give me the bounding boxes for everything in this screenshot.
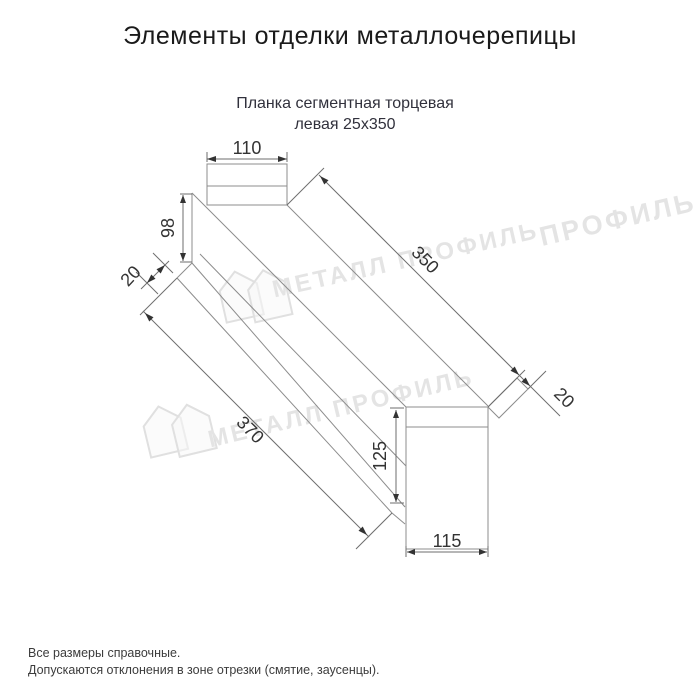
- dim-end-height: 125: [370, 408, 404, 503]
- near-end-flange: [488, 378, 528, 418]
- footer-note-1: Все размеры справочные.: [28, 645, 380, 662]
- dim-end-width: 115: [406, 531, 488, 557]
- dim-top-width-label: 110: [233, 138, 262, 158]
- far-fold-edge: [177, 263, 192, 278]
- dim-top-width: 110: [207, 138, 287, 162]
- dim-side-height: 98: [158, 194, 192, 262]
- far-end-face: [207, 164, 287, 205]
- footer-notes: Все размеры справочные. Допускаются откл…: [28, 645, 380, 678]
- technical-drawing: МЕТАЛЛ ПРОФИЛЬ МЕТАЛЛ ПРОФИЛЬ ПРОФИЛЬ: [0, 0, 700, 700]
- dim-side-fold: 20: [116, 253, 173, 294]
- near-end-face: [406, 407, 488, 549]
- watermark-3: ПРОФИЛЬ: [537, 187, 700, 252]
- footer-note-2: Допускаются отклонения в зоне отрезки (с…: [28, 662, 380, 679]
- dim-end-width-label: 115: [433, 531, 462, 551]
- watermark-2: МЕТАЛЛ ПРОФИЛЬ: [140, 333, 477, 467]
- near-fold-close: [392, 513, 405, 524]
- dim-side-fold-label: 20: [116, 262, 144, 290]
- catalog-page: Элементы отделки металлочерепицы Планка …: [0, 0, 700, 700]
- watermark-brand-text: МЕТАЛЛ ПРОФИЛЬ: [270, 217, 542, 303]
- dim-end-height-label: 125: [370, 441, 390, 471]
- dim-end-fold-label: 20: [550, 384, 578, 412]
- watermark-brand-text: ПРОФИЛЬ: [537, 187, 700, 252]
- profile-outline: [177, 164, 528, 549]
- dim-side-height-label: 98: [158, 218, 178, 238]
